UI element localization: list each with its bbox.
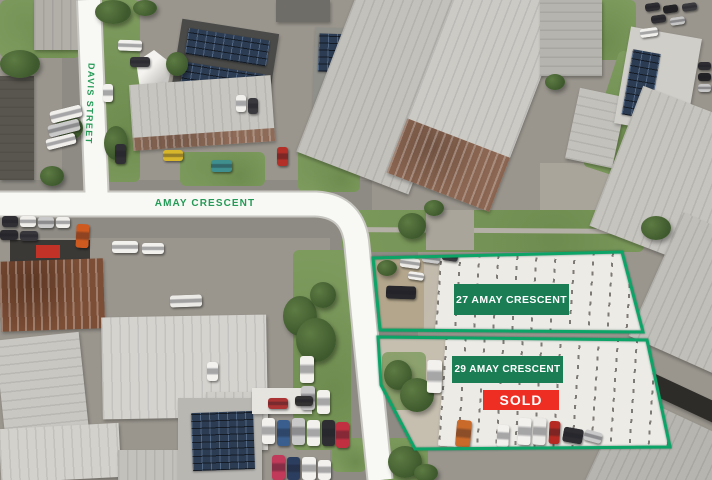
car [698,84,711,92]
tree [414,464,438,480]
aerial-photo: DAVIS STREET AMAY CRESCENT 27 AMAY CRESC… [0,0,712,480]
building-roof [0,423,121,480]
building-roof [178,398,262,480]
truck [455,419,472,447]
building-roof [540,0,602,76]
car [277,147,288,166]
car [112,241,138,253]
car [300,356,314,383]
tree [398,213,426,239]
van [427,360,443,393]
tree [641,216,671,240]
car [142,243,164,254]
tree [446,460,474,478]
driveway [426,210,474,250]
building-roof [0,76,34,180]
car [118,40,142,52]
red-sign [36,245,60,258]
van [302,457,316,480]
car [307,420,320,446]
car [651,14,667,24]
car [318,460,331,480]
car [317,390,330,414]
tree [0,50,40,78]
street-label-amay: AMAY CRESCENT [150,198,260,209]
car [262,418,275,444]
property-badge-27: 27 AMAY CRESCENT [454,284,569,315]
car [287,457,300,480]
car [2,216,18,227]
car [336,422,349,448]
rust-edge [133,128,276,151]
van [517,418,531,446]
car [663,4,679,14]
car [163,150,183,161]
car [386,285,416,299]
car [682,2,698,12]
van [496,425,509,448]
car [20,231,38,241]
car [75,224,89,249]
car [698,62,711,70]
car [272,455,285,480]
tree [377,260,397,276]
car [0,230,18,240]
car [20,216,36,227]
building-roof [276,0,330,22]
property-badge-29: 29 AMAY CRESCENT [452,356,563,383]
tree [545,74,565,90]
car [103,84,113,102]
tree [310,282,336,308]
building-roof [0,332,89,438]
car [248,98,258,114]
sold-badge: SOLD [483,390,559,410]
car [115,144,126,164]
solar-panels [191,411,255,471]
car [562,426,584,444]
rust-edge [387,118,510,212]
car [211,160,232,172]
solar-panels [185,28,270,67]
tree [133,0,157,16]
car [295,396,313,406]
van [207,362,218,381]
car [56,217,70,228]
car [236,95,246,112]
car [645,2,661,12]
car [322,420,335,446]
van [532,418,546,446]
car [38,217,54,228]
car [277,420,290,446]
tree [40,166,64,186]
rusty-roof [0,258,105,332]
car [130,57,150,67]
car [268,398,288,409]
car [292,418,305,445]
tree [424,200,444,216]
car [698,73,711,81]
truck [170,294,202,307]
tree [95,0,131,24]
truck [548,421,560,445]
car [670,16,686,26]
tree [166,52,188,76]
building-roof [34,0,92,50]
warehouse-roof-29 [438,326,682,462]
